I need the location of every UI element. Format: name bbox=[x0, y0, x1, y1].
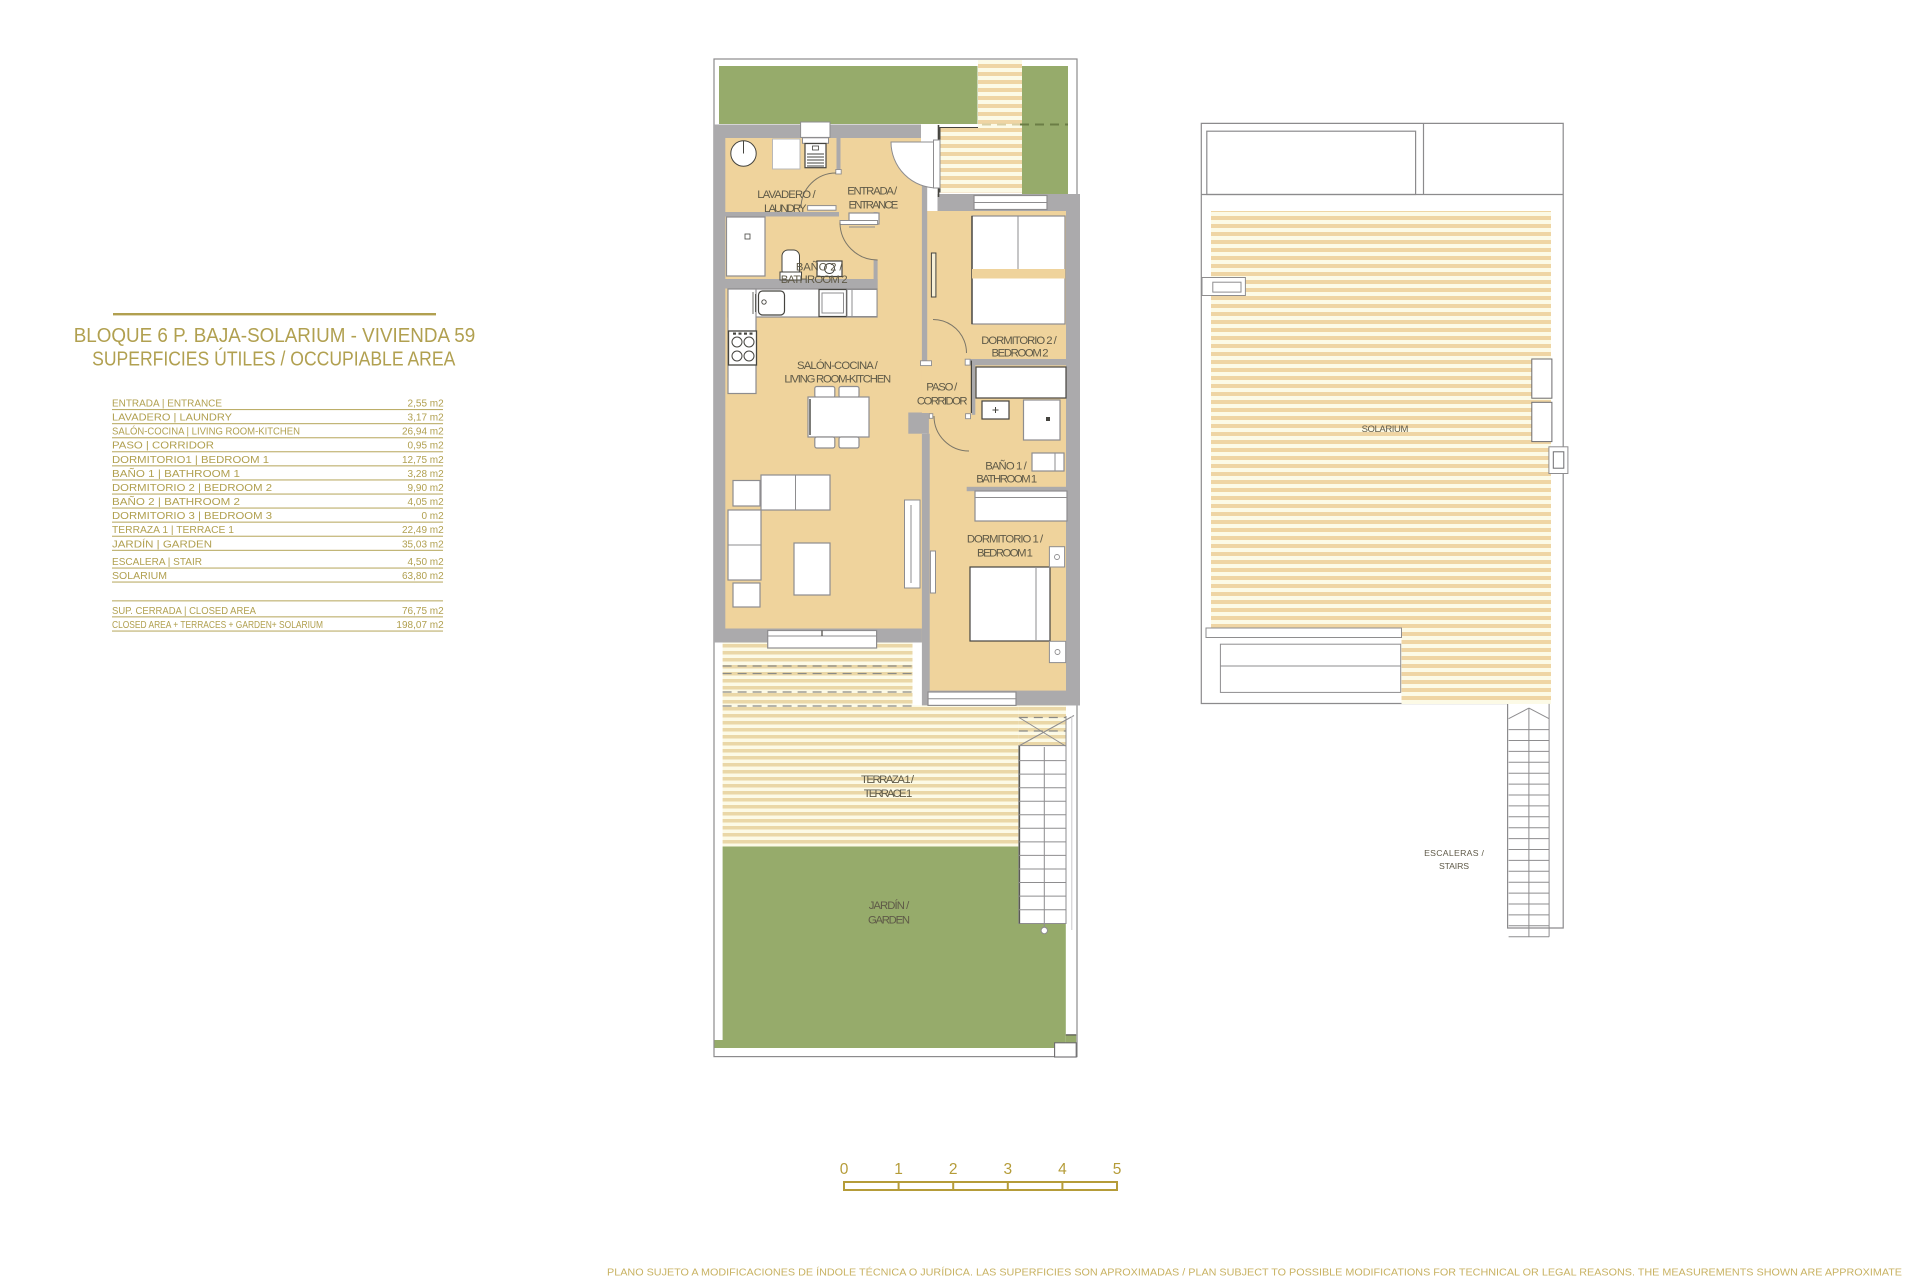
svg-text:CLOSED AREA + TERRACES + GARDE: CLOSED AREA + TERRACES + GARDEN+ SOLARIU… bbox=[112, 620, 323, 631]
svg-text:35,03 m2: 35,03 m2 bbox=[402, 539, 444, 550]
svg-text:198,07 m2: 198,07 m2 bbox=[396, 620, 444, 631]
svg-text:BATHROOM 1: BATHROOM 1 bbox=[976, 474, 1037, 486]
svg-text:DORMITORIO 2 | BEDROOM 2: DORMITORIO 2 | BEDROOM 2 bbox=[112, 483, 272, 494]
svg-text:TERRACE 1: TERRACE 1 bbox=[864, 788, 913, 800]
svg-text:0 m2: 0 m2 bbox=[421, 511, 444, 522]
svg-text:2: 2 bbox=[949, 1161, 958, 1178]
svg-text:CORRIDOR: CORRIDOR bbox=[917, 396, 968, 408]
svg-text:22,49 m2: 22,49 m2 bbox=[402, 525, 444, 536]
svg-text:9,90 m2: 9,90 m2 bbox=[408, 483, 445, 494]
svg-text:BATHROOM 2: BATHROOM 2 bbox=[781, 274, 848, 286]
svg-text:LAVADERO /: LAVADERO / bbox=[757, 189, 816, 201]
svg-text:1: 1 bbox=[894, 1161, 903, 1178]
svg-text:PASO /: PASO / bbox=[926, 382, 958, 394]
svg-text:4: 4 bbox=[1058, 1161, 1067, 1178]
svg-text:26,94 m2: 26,94 m2 bbox=[402, 427, 444, 438]
svg-text:JARDÍN /: JARDÍN / bbox=[869, 899, 910, 912]
svg-text:SOLARIUM: SOLARIUM bbox=[1362, 424, 1409, 435]
svg-text:BAÑO 2 /: BAÑO 2 / bbox=[796, 261, 844, 274]
svg-text:PLANO SUJETO A MODIFICACIONES: PLANO SUJETO A MODIFICACIONES DE ÍNDOLE … bbox=[607, 1266, 1902, 1279]
svg-text:ENTRADA /: ENTRADA / bbox=[847, 185, 898, 197]
svg-text:SUPERFICIES ÚTILES / OCCUPIABL: SUPERFICIES ÚTILES / OCCUPIABLE AREA bbox=[92, 347, 456, 370]
svg-text:TERRAZA 1 /: TERRAZA 1 / bbox=[861, 774, 915, 786]
svg-text:LIVING ROOM-KITCHEN: LIVING ROOM-KITCHEN bbox=[784, 373, 891, 385]
svg-text:ENTRANCE: ENTRANCE bbox=[849, 200, 899, 212]
svg-text:BEDROOM 2: BEDROOM 2 bbox=[992, 348, 1049, 360]
svg-text:3: 3 bbox=[1003, 1161, 1012, 1178]
svg-text:ENTRADA | ENTRANCE: ENTRADA | ENTRANCE bbox=[112, 399, 222, 410]
svg-text:LAUNDRY: LAUNDRY bbox=[764, 203, 807, 215]
svg-text:2,55 m2: 2,55 m2 bbox=[408, 399, 445, 410]
svg-text:SALÓN-COCINA /: SALÓN-COCINA / bbox=[797, 359, 879, 372]
svg-text:5: 5 bbox=[1113, 1161, 1122, 1178]
svg-text:ESCALERA | STAIR: ESCALERA | STAIR bbox=[112, 557, 202, 568]
svg-text:3,17 m2: 3,17 m2 bbox=[408, 413, 445, 424]
svg-text:76,75 m2: 76,75 m2 bbox=[402, 606, 444, 617]
svg-text:JARDÍN | GARDEN: JARDÍN | GARDEN bbox=[112, 537, 212, 550]
svg-text:12,75 m2: 12,75 m2 bbox=[402, 455, 444, 466]
svg-text:0,95 m2: 0,95 m2 bbox=[408, 441, 445, 452]
svg-text:0: 0 bbox=[840, 1161, 849, 1178]
svg-text:BLOQUE 6 P. BAJA-SOLARIUM - VI: BLOQUE 6 P. BAJA-SOLARIUM - VIVIENDA 59 bbox=[74, 325, 476, 347]
svg-text:DORMITORIO 3 | BEDROOM 3: DORMITORIO 3 | BEDROOM 3 bbox=[112, 511, 272, 522]
svg-text:3,28 m2: 3,28 m2 bbox=[408, 469, 445, 480]
svg-text:BAÑO 1 /: BAÑO 1 / bbox=[985, 460, 1027, 473]
svg-text:ESCALERAS /: ESCALERAS / bbox=[1424, 848, 1484, 858]
svg-text:GARDEN: GARDEN bbox=[868, 914, 910, 926]
svg-text:PASO | CORRIDOR: PASO | CORRIDOR bbox=[112, 441, 214, 452]
svg-text:4,50 m2: 4,50 m2 bbox=[408, 557, 445, 568]
svg-text:SALÓN-COCINA | LIVING ROOM-K: SALÓN-COCINA | LIVING ROOM-KITCHEN bbox=[112, 425, 300, 438]
svg-text:63,80 m2: 63,80 m2 bbox=[402, 571, 444, 582]
svg-text:BEDROOM 1: BEDROOM 1 bbox=[977, 547, 1033, 559]
svg-text:DORMITORIO 1 /: DORMITORIO 1 / bbox=[967, 534, 1044, 546]
svg-text:SOLARIUM: SOLARIUM bbox=[112, 571, 167, 582]
svg-text:BAÑO 1 | BATHROOM 1: BAÑO 1 | BATHROOM 1 bbox=[112, 467, 240, 480]
svg-text:4,05 m2: 4,05 m2 bbox=[408, 497, 445, 508]
svg-text:STAIRS: STAIRS bbox=[1439, 861, 1469, 871]
svg-text:TERRAZA 1 | TERRACE 1: TERRAZA 1 | TERRACE 1 bbox=[112, 525, 234, 536]
svg-text:DORMITORIO 2 /: DORMITORIO 2 / bbox=[981, 335, 1057, 347]
svg-text:LAVADERO | LAUNDRY: LAVADERO | LAUNDRY bbox=[112, 413, 232, 424]
svg-text:DORMITORIO1 | BEDROOM 1: DORMITORIO1 | BEDROOM 1 bbox=[112, 455, 269, 466]
svg-text:BAÑO 2 | BATHROOM 2: BAÑO 2 | BATHROOM 2 bbox=[112, 495, 240, 508]
svg-text:SUP. CERRADA | CLOSED AREA: SUP. CERRADA | CLOSED AREA bbox=[112, 606, 256, 617]
